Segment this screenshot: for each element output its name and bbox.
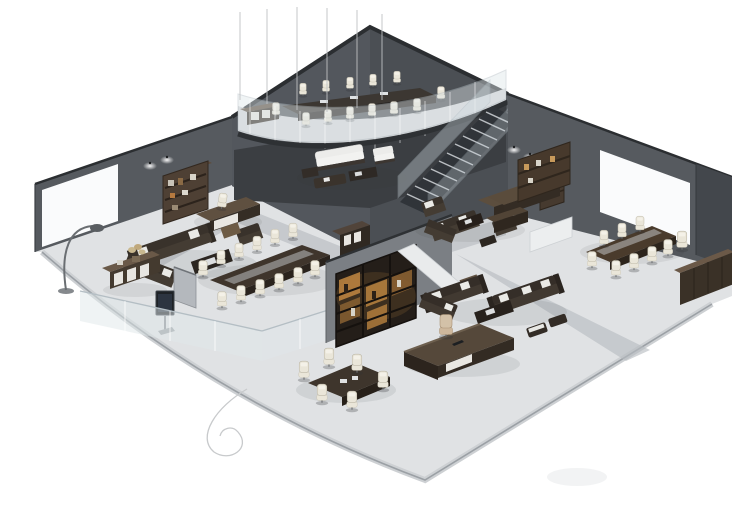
office-render	[0, 0, 732, 510]
isometric-office-scene	[0, 0, 732, 510]
floor-cable	[207, 389, 247, 456]
shadow-smudge	[547, 468, 607, 486]
executive-chair	[439, 315, 453, 340]
